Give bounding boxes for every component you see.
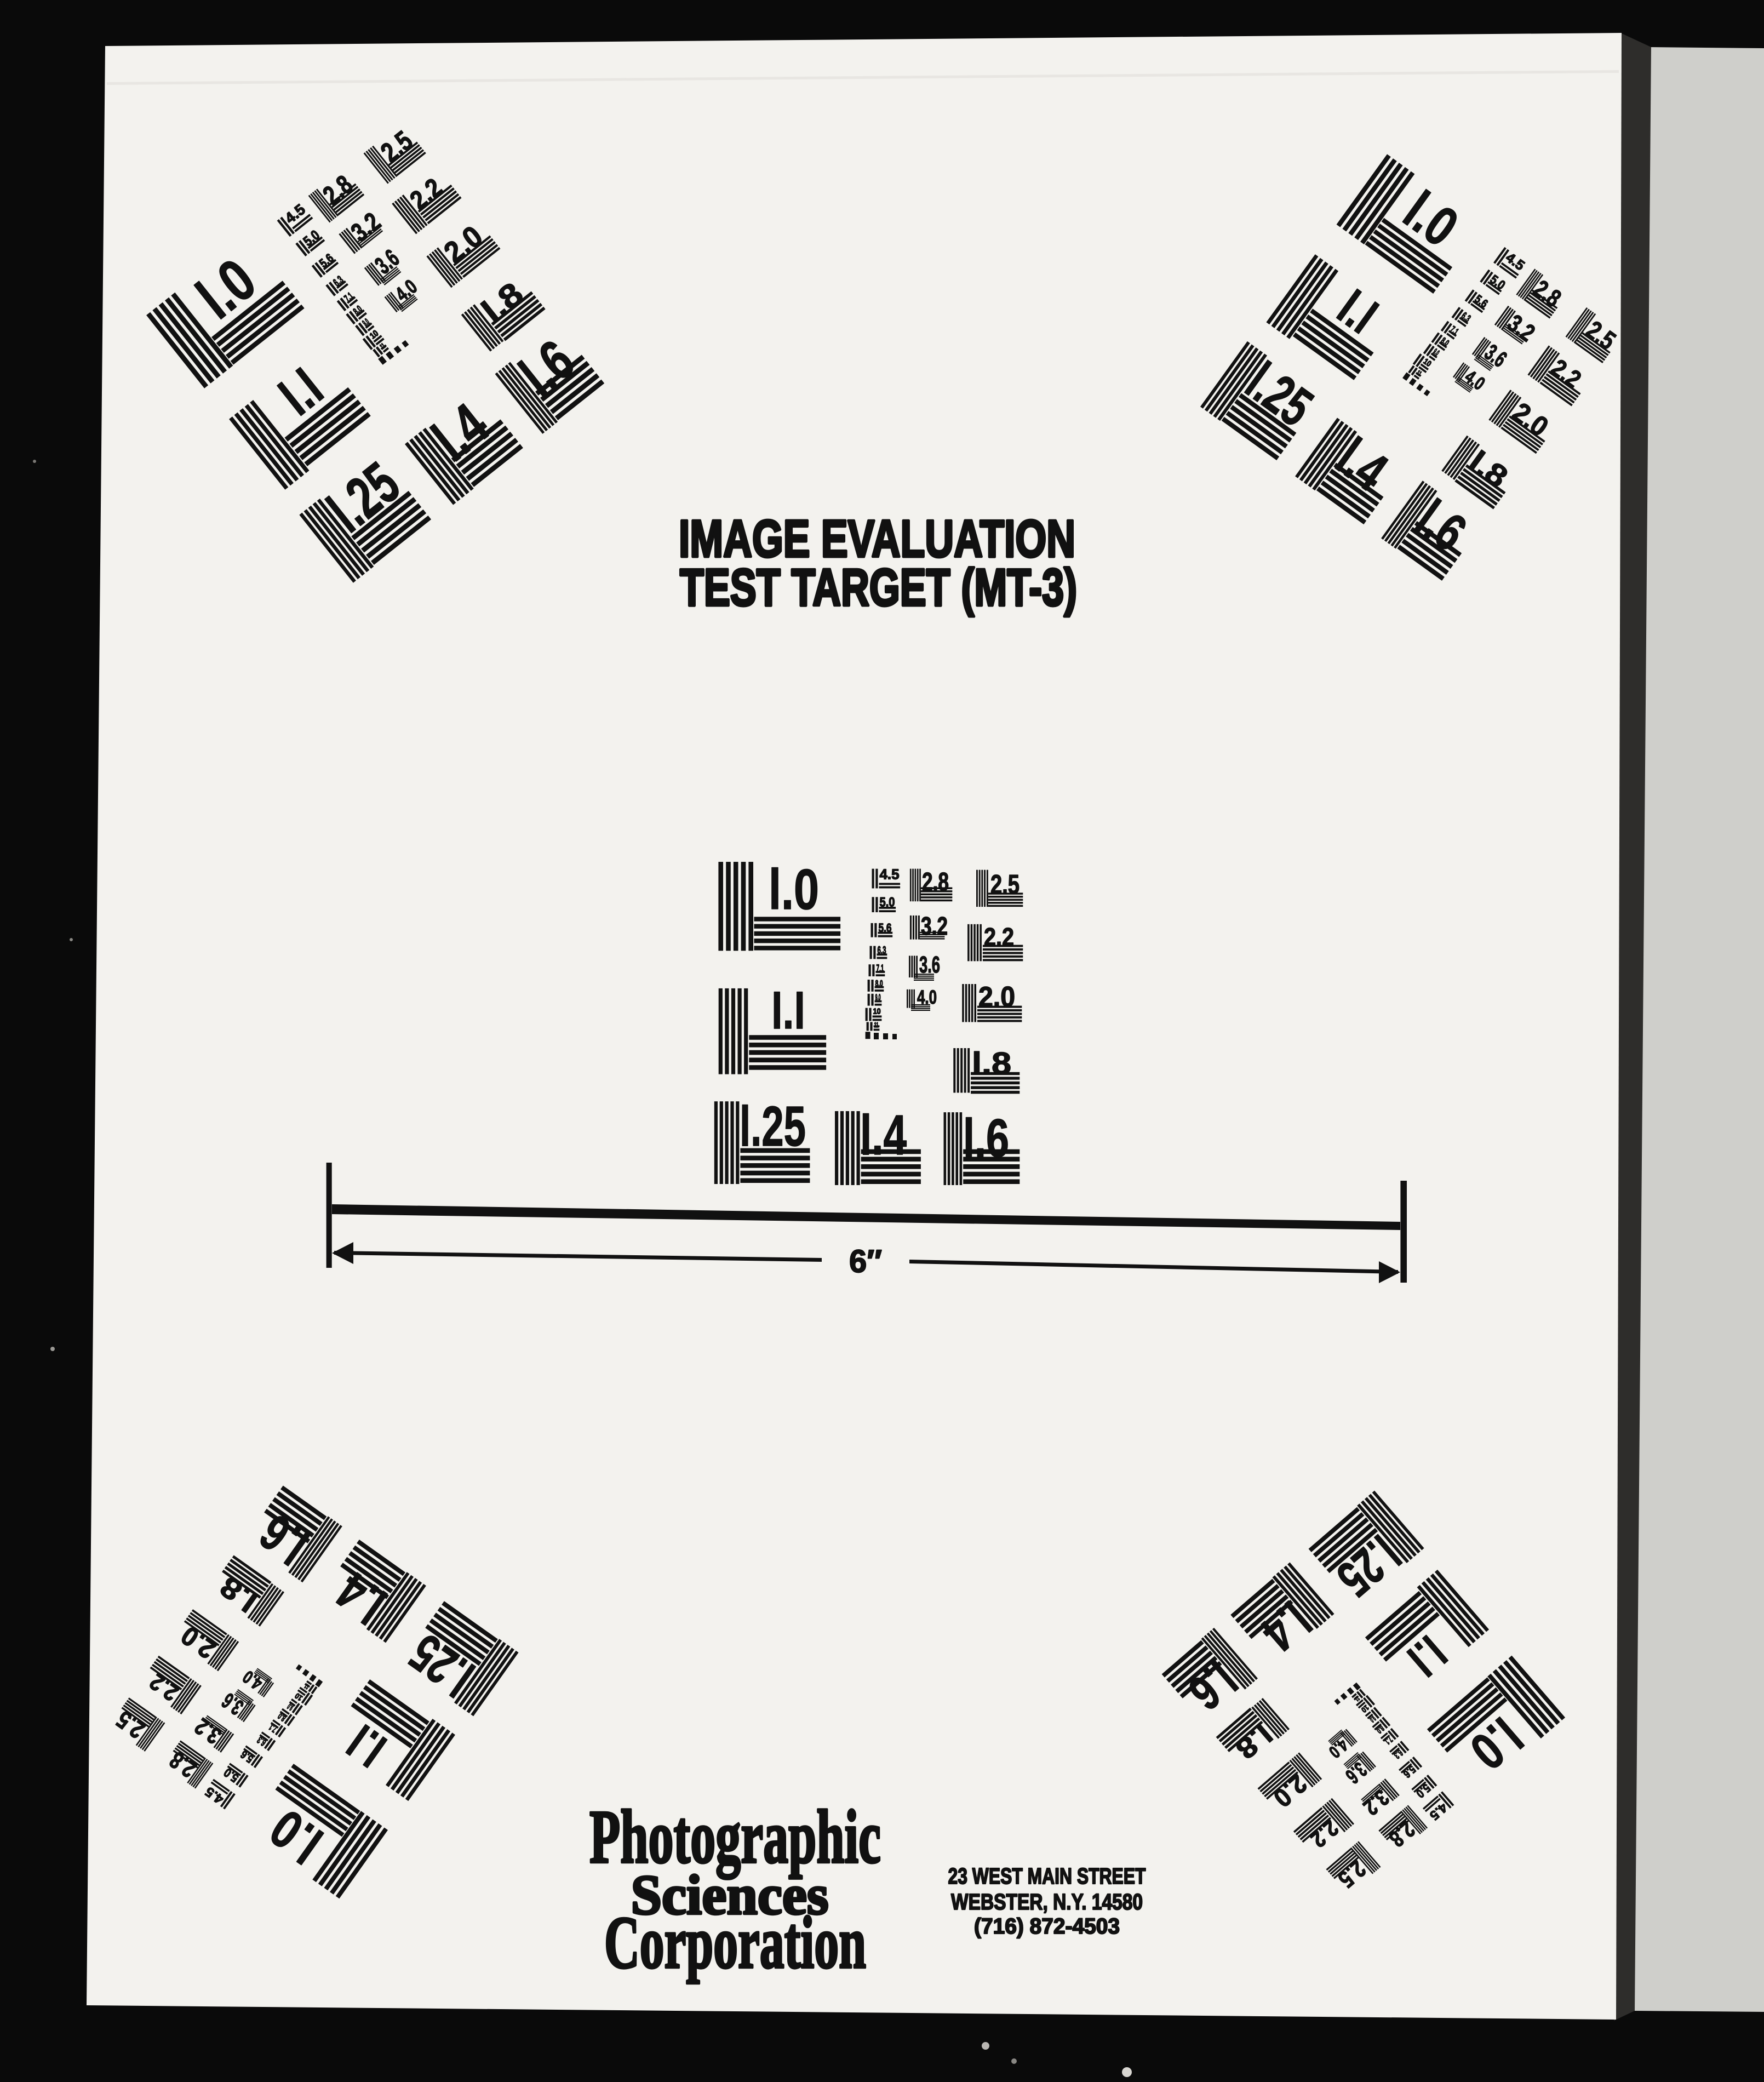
- svg-text:23 WEST MAIN STREET: 23 WEST MAIN STREET: [948, 1863, 1146, 1889]
- svg-text:TEST TARGET (MT-3): TEST TARGET (MT-3): [680, 558, 1077, 617]
- svg-text:WEBSTER, N.Y. 14580: WEBSTER, N.Y. 14580: [951, 1889, 1143, 1914]
- svg-text:Corporation: Corporation: [604, 1902, 866, 1984]
- svg-text:6″: 6″: [849, 1244, 882, 1279]
- svg-text:(716) 872-4503: (716) 872-4503: [974, 1914, 1120, 1938]
